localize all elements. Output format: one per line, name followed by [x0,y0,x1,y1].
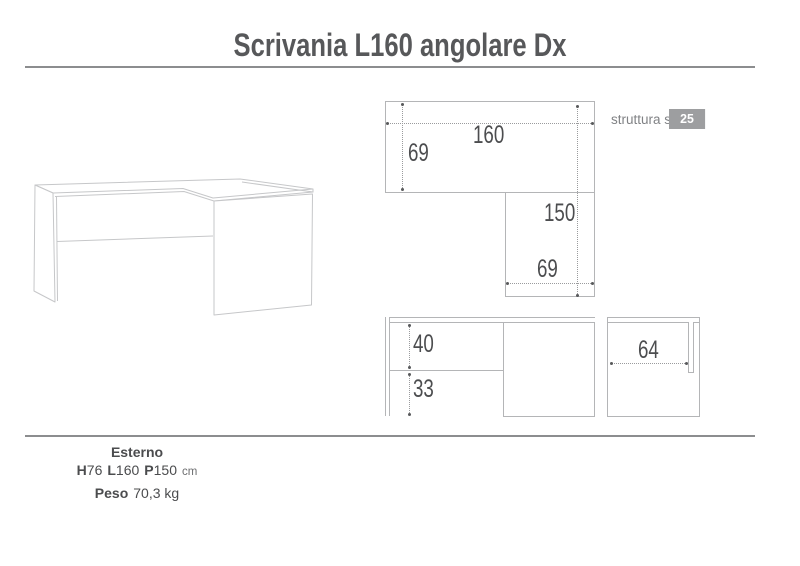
dim-line-plan-return-depth [577,106,578,296]
specs-dim-h-label: H [77,462,87,478]
specs-dims-unit: cm [182,466,197,478]
dim-line-plan-depth-left [402,104,403,190]
dim-line-front-upper [409,325,410,368]
plan-return-width-label: 69 [537,257,558,282]
front-view-left-leg [385,317,390,416]
front-lower-label: 33 [413,377,434,402]
dim-line-front-lower [409,374,410,415]
front-view-modesty-line [389,370,503,371]
desk-return-pedestal [214,194,313,315]
specs-heading-row: Esterno [57,443,217,461]
specs-dim-p-value: 150 [154,462,177,478]
specs-dim-l-label: L [107,462,116,478]
specs-weight-row: Peso70,3 kg [57,484,217,502]
desk-top-surface [35,179,313,198]
plan-depth-left-label: 69 [408,141,429,166]
plan-width-label: 160 [473,123,504,148]
side-view-desktop-line [608,322,699,323]
specs-dim-p-label: P [144,462,153,478]
front-upper-label: 40 [413,332,434,357]
desk-left-panel [34,185,55,302]
front-view-pedestal [503,322,595,417]
specs-heading: Esterno [111,444,163,460]
side-view-inner-panel [688,322,694,373]
structure-thickness-badge: 25 mm [669,109,705,129]
side-view-outline [607,317,700,417]
specs-weight-value: 70,3 kg [133,485,179,501]
specs-dim-h-value: 76 [87,462,103,478]
plan-return-depth-label: 150 [544,201,575,226]
specs-dimensions-row: H76L160P150cm [57,461,217,481]
specs-weight-label: Peso [95,485,128,501]
spec-sheet: Scrivania L160 angolare Dx 160 69 150 69… [0,0,800,566]
dim-line-plan-return-width [507,283,593,284]
specs-dim-l-value: 160 [116,462,139,478]
side-width-label: 64 [638,338,659,363]
desk-modesty-panel-edge [57,236,213,242]
specs-block: Esterno H76L160P150cm Peso70,3 kg [57,443,217,502]
